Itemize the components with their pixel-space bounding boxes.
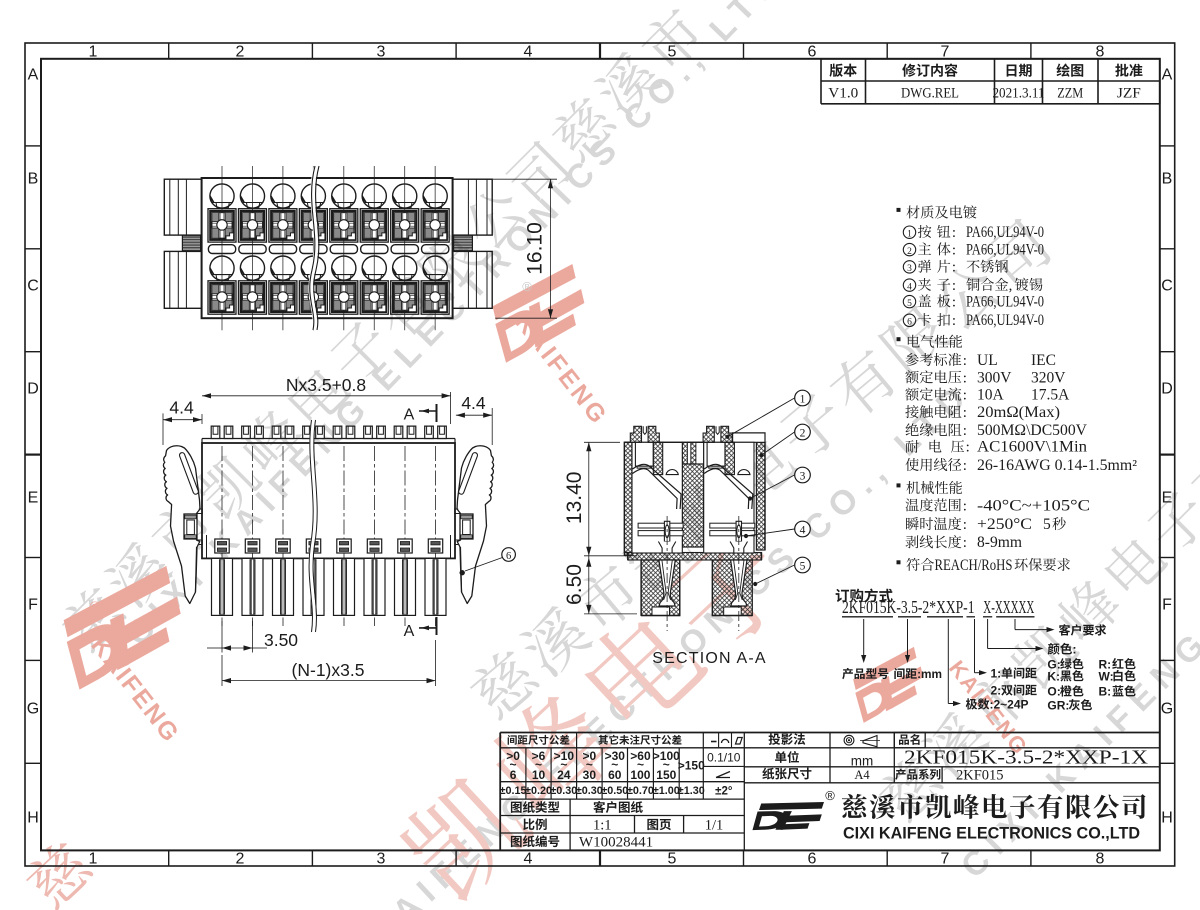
svg-text:8: 8 bbox=[1096, 44, 1105, 61]
svg-text:±1.30: ±1.30 bbox=[678, 785, 705, 797]
svg-text:6: 6 bbox=[808, 851, 817, 868]
svg-text:+250°C: +250°C bbox=[977, 516, 1032, 533]
svg-text:1:: 1: bbox=[991, 667, 1002, 681]
svg-text:±0.70: ±0.70 bbox=[627, 785, 654, 797]
svg-text:3: 3 bbox=[800, 471, 806, 483]
svg-text:Nx3.5+0.8: Nx3.5+0.8 bbox=[286, 375, 366, 395]
svg-text:±1.00: ±1.00 bbox=[653, 785, 680, 797]
svg-text:320V: 320V bbox=[1031, 369, 1066, 386]
svg-text:PA66,UL94V-0: PA66,UL94V-0 bbox=[966, 312, 1044, 329]
svg-text:PA66,UL94V-0: PA66,UL94V-0 bbox=[966, 293, 1044, 310]
svg-text:G: G bbox=[27, 701, 39, 718]
svg-text:3: 3 bbox=[377, 851, 386, 868]
svg-text:4: 4 bbox=[524, 851, 533, 868]
svg-text:6.50: 6.50 bbox=[563, 564, 586, 605]
svg-text::: : bbox=[952, 294, 956, 310]
svg-text:7: 7 bbox=[941, 44, 950, 61]
svg-text:A4: A4 bbox=[854, 768, 870, 782]
svg-text::: : bbox=[952, 242, 956, 258]
svg-text:8-9mm: 8-9mm bbox=[977, 534, 1022, 551]
svg-text:±2°: ±2° bbox=[715, 785, 733, 797]
svg-text::: : bbox=[952, 260, 956, 276]
svg-text:E: E bbox=[28, 490, 39, 507]
svg-text:2KF015K-3.5-2*XXP-1X: 2KF015K-3.5-2*XXP-1X bbox=[904, 747, 1149, 769]
svg-text:5: 5 bbox=[800, 561, 806, 573]
svg-text::: : bbox=[963, 458, 967, 474]
svg-text:4.4: 4.4 bbox=[169, 398, 194, 418]
svg-text:7: 7 bbox=[941, 851, 950, 868]
svg-text:®: ® bbox=[825, 788, 835, 803]
svg-text::: : bbox=[963, 517, 967, 533]
svg-text:A: A bbox=[1162, 67, 1173, 84]
svg-text:3: 3 bbox=[377, 44, 386, 61]
svg-text:2: 2 bbox=[907, 247, 912, 257]
svg-text:17.5A: 17.5A bbox=[1031, 387, 1070, 404]
svg-text:100: 100 bbox=[630, 768, 650, 782]
svg-text:F: F bbox=[28, 597, 38, 614]
svg-text:D: D bbox=[27, 381, 39, 398]
svg-text:AC1600V\1Min: AC1600V\1Min bbox=[977, 439, 1087, 456]
svg-text:W:: W: bbox=[1099, 669, 1114, 683]
svg-text:UL: UL bbox=[977, 352, 998, 369]
svg-text:B: B bbox=[28, 171, 39, 188]
svg-text:G: G bbox=[1161, 701, 1173, 718]
svg-text:26-16AWG 0.14-1.5mm²: 26-16AWG 0.14-1.5mm² bbox=[977, 457, 1137, 474]
svg-text:2:: 2: bbox=[991, 684, 1002, 698]
svg-text:6: 6 bbox=[506, 551, 511, 562]
svg-text:D: D bbox=[1161, 381, 1173, 398]
svg-text:A: A bbox=[404, 623, 415, 640]
svg-text:(N-1)x3.5: (N-1)x3.5 bbox=[292, 660, 365, 680]
svg-text:10: 10 bbox=[532, 768, 546, 782]
svg-text:A: A bbox=[404, 407, 415, 424]
svg-text::mm: :mm bbox=[917, 667, 942, 681]
svg-text::: : bbox=[963, 535, 967, 551]
svg-text:PA66,UL94V-0: PA66,UL94V-0 bbox=[966, 224, 1044, 241]
svg-text:4.4: 4.4 bbox=[461, 393, 486, 413]
svg-text:24: 24 bbox=[557, 768, 571, 782]
svg-text:DWG.REL: DWG.REL bbox=[901, 86, 959, 102]
svg-text:F: F bbox=[1162, 597, 1172, 614]
svg-text:X-XXXXX: X-XXXXX bbox=[983, 597, 1034, 617]
svg-text::: : bbox=[952, 278, 956, 294]
svg-text:C: C bbox=[1161, 278, 1173, 295]
svg-text:6: 6 bbox=[907, 318, 912, 328]
svg-text:>150: >150 bbox=[678, 759, 705, 773]
svg-text:PA66,UL94V-0: PA66,UL94V-0 bbox=[966, 241, 1044, 258]
svg-text::: : bbox=[963, 423, 967, 439]
svg-text:V1.0: V1.0 bbox=[828, 86, 858, 102]
svg-text:O:: O: bbox=[1047, 685, 1060, 699]
svg-text:3: 3 bbox=[907, 264, 912, 274]
svg-text:6: 6 bbox=[510, 768, 517, 782]
svg-text::2~24P: :2~24P bbox=[990, 698, 1029, 712]
svg-text:±0.20: ±0.20 bbox=[525, 785, 552, 797]
svg-text:5: 5 bbox=[907, 299, 912, 309]
svg-text:1: 1 bbox=[89, 851, 98, 868]
svg-text:mm: mm bbox=[851, 754, 874, 769]
svg-text:16.10: 16.10 bbox=[524, 222, 547, 275]
svg-text:A: A bbox=[28, 67, 39, 84]
svg-text:-40°C~+105°C: -40°C~+105°C bbox=[977, 497, 1090, 514]
svg-text:±0.30: ±0.30 bbox=[550, 785, 577, 797]
svg-text:®: ® bbox=[522, 279, 532, 294]
svg-text::: : bbox=[963, 388, 967, 404]
svg-text:30: 30 bbox=[583, 768, 597, 782]
svg-text:4: 4 bbox=[907, 282, 912, 292]
svg-text:300V: 300V bbox=[977, 369, 1012, 386]
svg-text:H: H bbox=[1161, 810, 1173, 827]
svg-text:10A: 10A bbox=[977, 387, 1005, 404]
svg-text:±0.50: ±0.50 bbox=[601, 785, 628, 797]
svg-text:W10028441: W10028441 bbox=[579, 835, 653, 851]
svg-text:8: 8 bbox=[1096, 851, 1105, 868]
svg-text::: : bbox=[952, 313, 956, 329]
svg-text:SECTION A-A: SECTION A-A bbox=[652, 650, 767, 667]
svg-text:5: 5 bbox=[1043, 516, 1051, 533]
svg-text:H: H bbox=[27, 810, 39, 827]
svg-text:±0.30: ±0.30 bbox=[576, 785, 603, 797]
svg-text:B:: B: bbox=[1099, 685, 1112, 699]
svg-text:JZF: JZF bbox=[1117, 86, 1141, 102]
svg-text::: : bbox=[963, 405, 967, 421]
svg-text:GR:: GR: bbox=[1047, 698, 1069, 712]
svg-text:5: 5 bbox=[668, 44, 677, 61]
svg-text::: : bbox=[963, 353, 967, 369]
svg-text:500MΩ\DC500V: 500MΩ\DC500V bbox=[977, 422, 1088, 439]
svg-text:60: 60 bbox=[608, 768, 622, 782]
svg-text::: : bbox=[963, 498, 967, 514]
svg-text::: : bbox=[966, 440, 970, 456]
svg-text:1: 1 bbox=[89, 44, 98, 61]
svg-text::: : bbox=[963, 370, 967, 386]
svg-text:B: B bbox=[1162, 171, 1173, 188]
svg-text::: : bbox=[1072, 643, 1076, 657]
svg-text:1:1: 1:1 bbox=[593, 818, 612, 834]
svg-text:5: 5 bbox=[668, 851, 677, 868]
svg-text:2: 2 bbox=[236, 44, 245, 61]
svg-text:2: 2 bbox=[236, 851, 245, 868]
svg-text:20mΩ(Max): 20mΩ(Max) bbox=[977, 404, 1060, 421]
svg-text:K:: K: bbox=[1047, 669, 1060, 683]
svg-text:150: 150 bbox=[656, 768, 676, 782]
svg-text:6: 6 bbox=[808, 44, 817, 61]
svg-text:4: 4 bbox=[800, 525, 806, 537]
svg-text:REACH/RoHS: REACH/RoHS bbox=[935, 557, 1013, 574]
svg-text:2: 2 bbox=[800, 428, 806, 440]
svg-text:13.40: 13.40 bbox=[563, 472, 586, 525]
svg-text:2KF015: 2KF015 bbox=[956, 767, 1004, 783]
svg-text:IEC: IEC bbox=[1031, 352, 1056, 369]
svg-text:,: , bbox=[1009, 278, 1013, 294]
svg-text:C: C bbox=[27, 278, 39, 295]
svg-text:1: 1 bbox=[800, 394, 806, 406]
svg-text:0.1/10: 0.1/10 bbox=[707, 751, 741, 765]
svg-text:CIXI KAIFENG ELECTRONICS CO.,L: CIXI KAIFENG ELECTRONICS CO.,LTD bbox=[843, 824, 1140, 843]
svg-text:1: 1 bbox=[907, 229, 912, 239]
svg-text::: : bbox=[952, 225, 956, 241]
svg-text:1/1: 1/1 bbox=[705, 818, 724, 834]
svg-text:2KF015K-3.5-2*XXP-1: 2KF015K-3.5-2*XXP-1 bbox=[842, 597, 975, 617]
svg-text:4: 4 bbox=[524, 44, 533, 61]
svg-text:±0.15: ±0.15 bbox=[500, 785, 527, 797]
svg-text:E: E bbox=[1162, 490, 1173, 507]
svg-text:2021.3.11: 2021.3.11 bbox=[993, 86, 1045, 102]
svg-text:®: ® bbox=[89, 599, 100, 616]
svg-text:ZZM: ZZM bbox=[1057, 86, 1083, 102]
svg-text:3.50: 3.50 bbox=[264, 630, 298, 650]
